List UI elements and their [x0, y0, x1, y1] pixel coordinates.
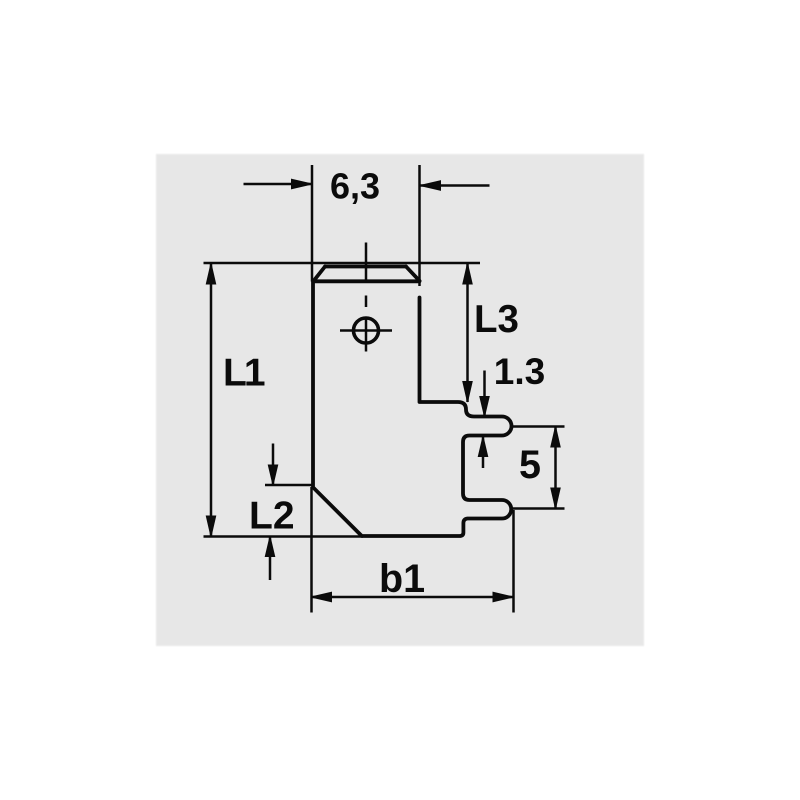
svg-text:6,3: 6,3	[330, 166, 380, 207]
svg-text:1.3: 1.3	[494, 351, 545, 392]
svg-text:L2: L2	[249, 495, 295, 538]
svg-text:L1: L1	[223, 352, 265, 395]
svg-text:5: 5	[519, 443, 541, 487]
svg-text:b1: b1	[379, 557, 425, 601]
svg-text:L3: L3	[474, 298, 519, 341]
